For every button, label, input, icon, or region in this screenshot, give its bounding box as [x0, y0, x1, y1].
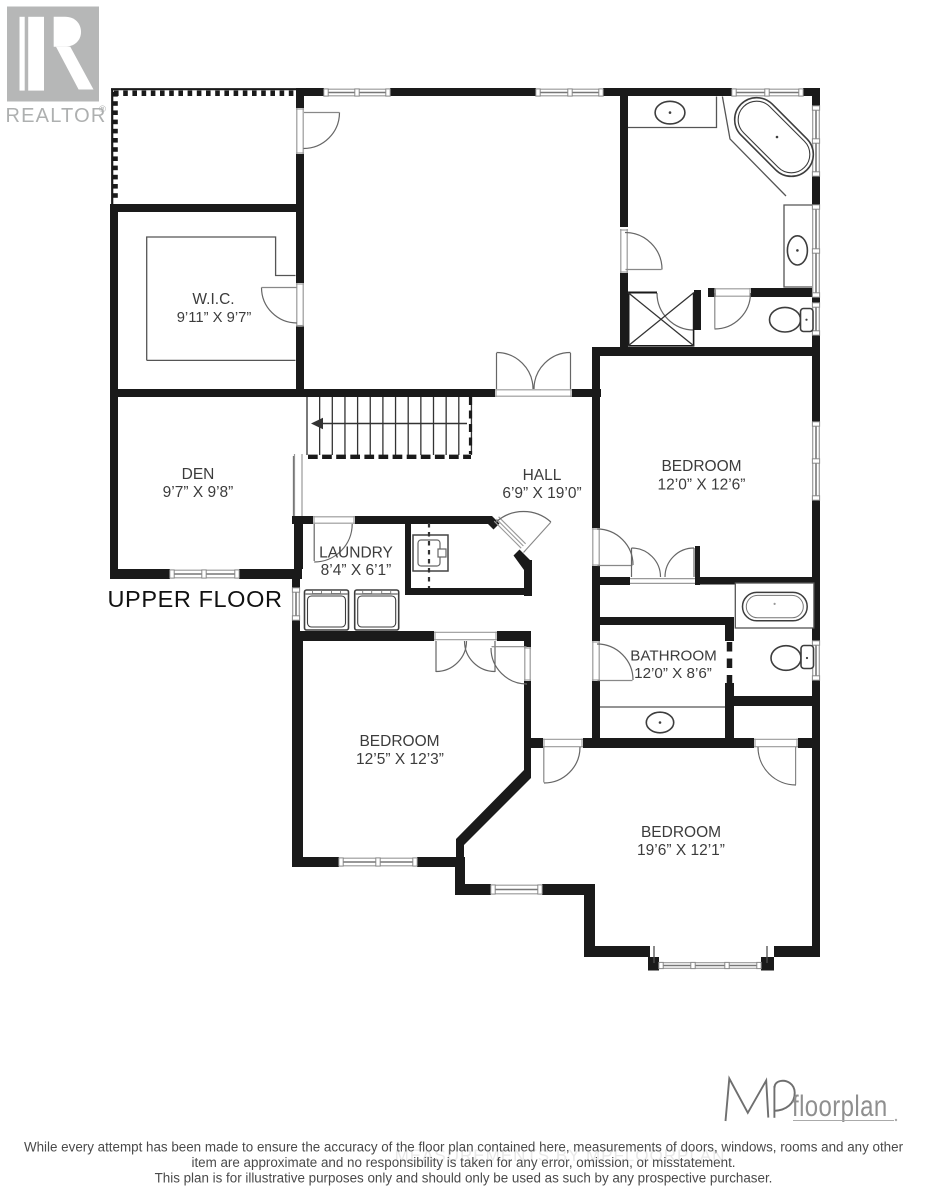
svg-text:LAUNDRY: LAUNDRY: [319, 545, 393, 562]
svg-text:®: ®: [99, 104, 106, 115]
svg-text:12’5” X 12’3”: 12’5” X 12’3”: [356, 751, 444, 768]
svg-text:12’0” X 8’6”: 12’0” X 8’6”: [634, 665, 712, 682]
svg-text:BEDROOM: BEDROOM: [661, 458, 741, 475]
svg-text:9’11” X 9’7”: 9’11” X 9’7”: [177, 310, 252, 326]
svg-text:item are approximate and no re: item are approximate and no responsibili…: [191, 1155, 735, 1170]
svg-text:REALTOR: REALTOR: [6, 105, 107, 127]
svg-text:This plan is for illustrative: This plan is for illustrative purposes o…: [155, 1171, 773, 1186]
svg-text:DEN: DEN: [182, 466, 215, 483]
svg-text:6’9” X 19’0”: 6’9” X 19’0”: [502, 485, 581, 502]
svg-text:floorplan: floorplan: [792, 1088, 888, 1122]
svg-text:HALL: HALL: [523, 467, 562, 484]
svg-text:UPPER FLOOR: UPPER FLOOR: [107, 586, 282, 612]
svg-text:BEDROOM: BEDROOM: [359, 733, 439, 750]
svg-text:9’7” X 9’8”: 9’7” X 9’8”: [163, 484, 234, 501]
svg-text:BEDROOM: BEDROOM: [641, 824, 721, 841]
svg-text:8’4” X 6’1”: 8’4” X 6’1”: [321, 562, 392, 579]
svg-text:12’0” X 12’6”: 12’0” X 12’6”: [658, 477, 746, 494]
svg-text:W.I.C.: W.I.C.: [192, 291, 234, 308]
svg-text:19’6” X 12’1”: 19’6” X 12’1”: [637, 842, 725, 859]
svg-text:While every attempt has been m: While every attempt has been made to ens…: [24, 1140, 904, 1155]
svg-text:BATHROOM: BATHROOM: [630, 648, 717, 665]
